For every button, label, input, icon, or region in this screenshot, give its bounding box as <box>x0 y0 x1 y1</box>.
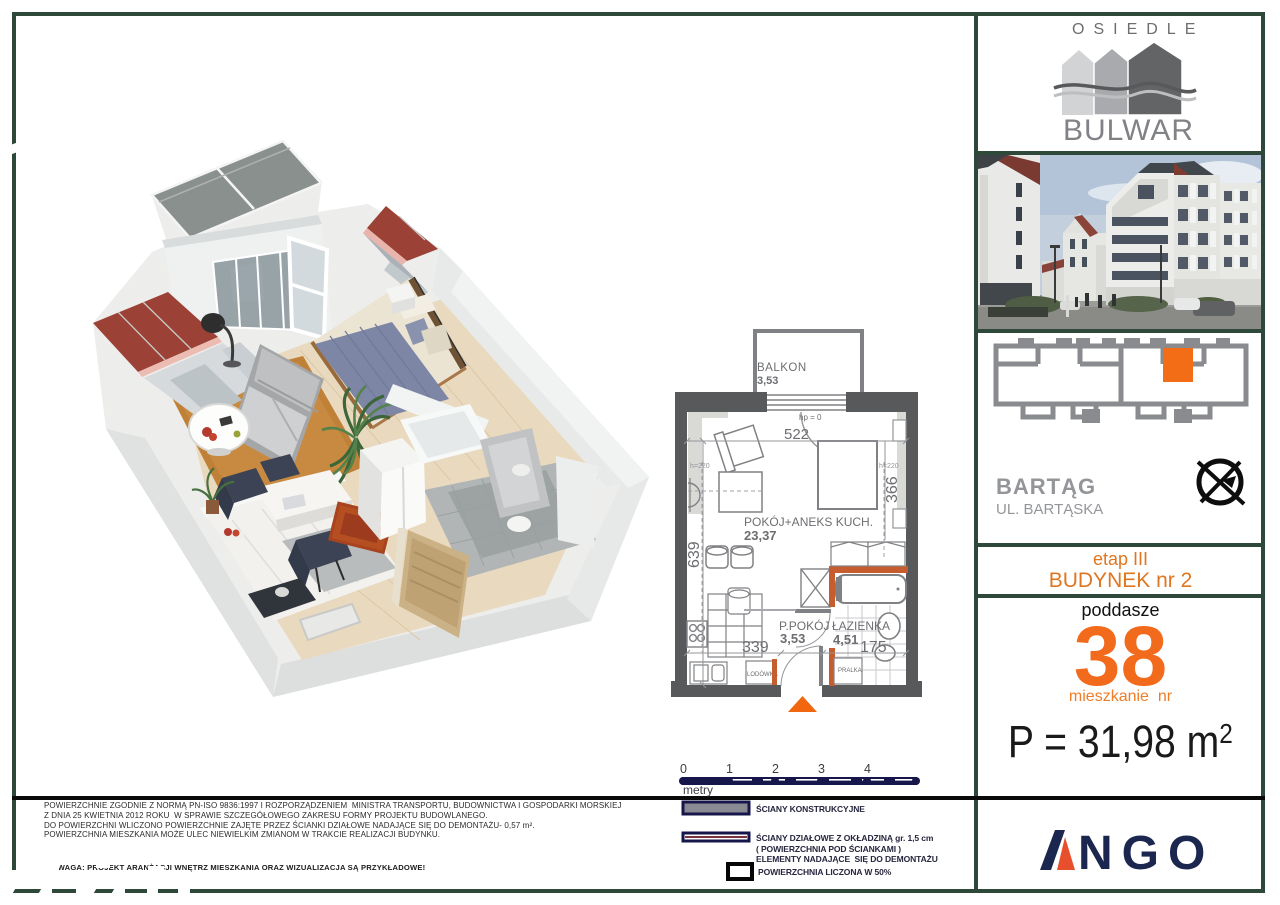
svg-text:POKÓJ+ANEKS KUCH.: POKÓJ+ANEKS KUCH. <box>744 514 873 529</box>
svg-text:3,53: 3,53 <box>757 375 778 387</box>
svg-text:h=220: h=220 <box>879 463 899 470</box>
svg-text:639: 639 <box>686 541 703 568</box>
svg-text:0: 0 <box>680 762 687 776</box>
svg-text:339: 339 <box>742 639 769 656</box>
svg-text:23,37: 23,37 <box>744 528 777 543</box>
svg-text:4: 4 <box>864 762 871 776</box>
svg-text:3,53: 3,53 <box>780 631 805 646</box>
svg-text:PRALKA: PRALKA <box>838 668 862 674</box>
svg-text:2: 2 <box>772 762 779 776</box>
svg-text:ŁAZIENKA: ŁAZIENKA <box>832 619 890 633</box>
svg-text:175: 175 <box>860 639 887 656</box>
svg-text:4,51: 4,51 <box>833 632 858 647</box>
svg-text:366: 366 <box>884 476 901 503</box>
svg-text:h=220: h=220 <box>690 463 710 470</box>
svg-text:3: 3 <box>818 762 825 776</box>
svg-text:522: 522 <box>784 426 809 443</box>
svg-text:hp = 0: hp = 0 <box>799 413 822 422</box>
svg-text:NGO: NGO <box>1078 828 1210 872</box>
svg-text:BALKON: BALKON <box>757 362 807 374</box>
svg-text:metry: metry <box>683 783 713 797</box>
svg-text:1: 1 <box>726 762 733 776</box>
